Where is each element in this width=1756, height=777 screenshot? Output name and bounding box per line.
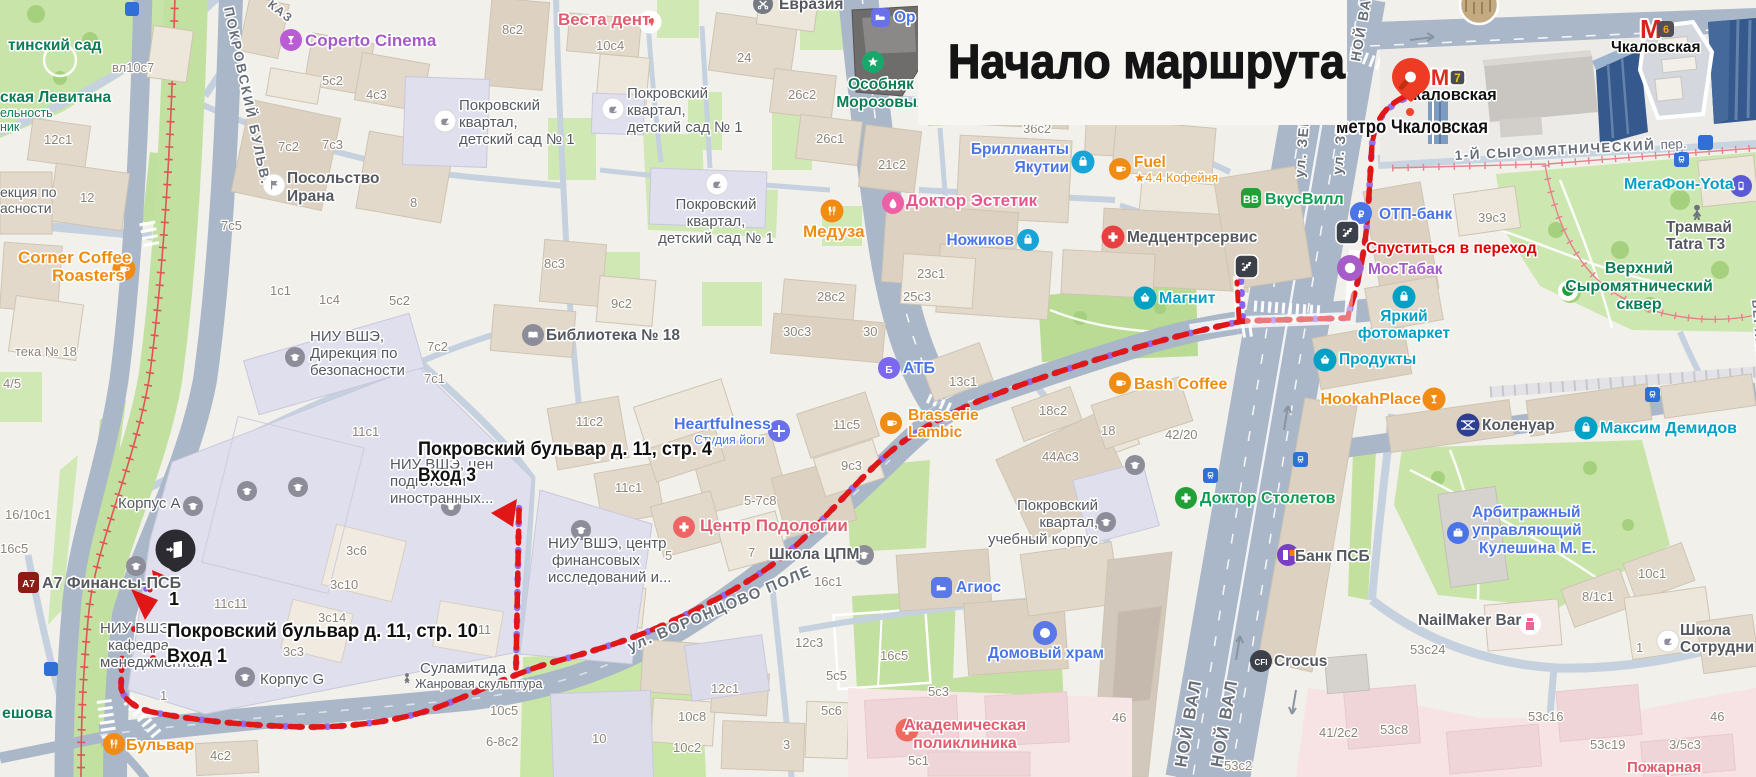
svg-text:Домовый храм: Домовый храм bbox=[988, 645, 1104, 662]
svg-text:А7: А7 bbox=[22, 579, 35, 590]
svg-text:12с1: 12с1 bbox=[711, 681, 739, 696]
svg-text:12с1: 12с1 bbox=[44, 132, 72, 147]
svg-text:8/1с1: 8/1с1 bbox=[1582, 589, 1614, 604]
svg-text:тека № 18: тека № 18 bbox=[15, 344, 77, 359]
svg-text:ВкусВилл: ВкусВилл bbox=[1265, 191, 1344, 208]
svg-text:Ножиков: Ножиков bbox=[946, 232, 1014, 249]
svg-text:5с5: 5с5 bbox=[826, 668, 847, 683]
svg-text:1с1: 1с1 bbox=[270, 283, 291, 298]
svg-text:30: 30 bbox=[863, 324, 877, 339]
svg-text:Доктор Эстетик: Доктор Эстетик bbox=[906, 191, 1038, 210]
svg-text:Суламитида: Суламитида bbox=[420, 660, 507, 677]
svg-text:7: 7 bbox=[748, 545, 755, 560]
svg-text:39с3: 39с3 bbox=[1478, 210, 1506, 225]
svg-text:ОсобнякМорозовых: ОсобнякМорозовых bbox=[836, 76, 926, 111]
svg-text:6: 6 bbox=[1663, 24, 1669, 36]
svg-text:1: 1 bbox=[160, 688, 167, 703]
svg-text:10с5: 10с5 bbox=[490, 703, 518, 718]
svg-text:вл10с7: вл10с7 bbox=[112, 60, 154, 75]
svg-text:11с1: 11с1 bbox=[615, 480, 642, 495]
svg-text:Heartfulness: Heartfulness bbox=[674, 416, 771, 433]
svg-text:АТБ: АТБ bbox=[903, 360, 935, 377]
svg-text:16/10с1: 16/10с1 bbox=[5, 507, 51, 522]
svg-text:Коленуар: Коленуар bbox=[1482, 417, 1555, 434]
svg-text:42/20: 42/20 bbox=[1165, 427, 1198, 442]
svg-text:ОТП-банк: ОТП-банк bbox=[1379, 206, 1452, 223]
svg-text:Покровский бульвар д. 11, стр.: Покровский бульвар д. 11, стр. 4 bbox=[418, 439, 712, 460]
svg-text:Веста дент: Веста дент bbox=[558, 10, 650, 29]
svg-text:Школа ЦПМ: Школа ЦПМ bbox=[769, 546, 859, 563]
svg-text:26с2: 26с2 bbox=[788, 87, 816, 102]
svg-text:11с1: 11с1 bbox=[352, 424, 379, 439]
svg-text:ельность: ельность bbox=[0, 106, 53, 120]
svg-text:CFI: CFI bbox=[1255, 658, 1268, 667]
svg-text:Продукты: Продукты bbox=[1339, 351, 1416, 368]
svg-text:16с5: 16с5 bbox=[0, 541, 28, 556]
svg-text:7с2: 7с2 bbox=[278, 139, 299, 154]
svg-text:12с3: 12с3 bbox=[795, 635, 823, 650]
svg-text:53с16: 53с16 bbox=[1528, 709, 1563, 724]
svg-text:13с1: 13с1 bbox=[949, 374, 977, 389]
svg-text:ВВ: ВВ bbox=[1243, 194, 1259, 206]
svg-text:3/5с3: 3/5с3 bbox=[1669, 737, 1701, 752]
svg-text:Корпус G: Корпус G bbox=[260, 671, 324, 688]
svg-text:Покровский бульвар д. 11, стр.: Покровский бульвар д. 11, стр. 10 bbox=[167, 621, 478, 642]
svg-text:1: 1 bbox=[169, 589, 179, 609]
svg-text:25с3: 25с3 bbox=[903, 289, 931, 304]
svg-text:11с11: 11с11 bbox=[214, 596, 248, 611]
svg-text:5с6: 5с6 bbox=[821, 703, 842, 718]
svg-text:Вход 3: Вход 3 bbox=[418, 465, 476, 486]
svg-text:3с10: 3с10 bbox=[330, 577, 358, 592]
svg-text:46: 46 bbox=[1710, 709, 1724, 724]
svg-text:Б: Б bbox=[885, 364, 893, 376]
svg-text:4с3: 4с3 bbox=[366, 87, 387, 102]
svg-text:21с2: 21с2 bbox=[878, 157, 906, 172]
svg-text:Медуза: Медуза bbox=[803, 222, 865, 241]
svg-text:Академическаяполиклиника: Академическаяполиклиника bbox=[904, 717, 1026, 752]
svg-text:Медцентрсервис: Медцентрсервис bbox=[1127, 229, 1258, 246]
svg-text:10: 10 bbox=[592, 731, 606, 746]
svg-text:Центр Подологии: Центр Подологии bbox=[700, 516, 848, 535]
svg-text:5с2: 5с2 bbox=[322, 73, 343, 88]
svg-text:10с2: 10с2 bbox=[673, 740, 701, 755]
svg-text:6-8с2: 6-8с2 bbox=[486, 734, 519, 749]
svg-text:9с2: 9с2 bbox=[611, 296, 632, 311]
svg-text:10с4: 10с4 bbox=[596, 38, 624, 53]
svg-text:1: 1 bbox=[1636, 640, 1643, 655]
svg-text:3с6: 3с6 bbox=[346, 543, 367, 558]
svg-text:Магнит: Магнит bbox=[1159, 290, 1216, 307]
svg-text:11с5: 11с5 bbox=[833, 417, 860, 432]
svg-text:44Ас3: 44Ас3 bbox=[1042, 449, 1079, 464]
svg-text:7с1: 7с1 bbox=[424, 371, 445, 386]
svg-text:10с8: 10с8 bbox=[678, 709, 706, 724]
svg-text:Crocus: Crocus bbox=[1274, 653, 1327, 670]
svg-text:ТрамвайTatra T3: ТрамвайTatra T3 bbox=[1666, 219, 1732, 253]
svg-text:7с5: 7с5 bbox=[221, 218, 242, 233]
svg-text:Fuel: Fuel bbox=[1134, 154, 1166, 171]
svg-text:ник: ник bbox=[0, 120, 20, 134]
svg-text:5-7с8: 5-7с8 bbox=[744, 493, 777, 508]
svg-text:28с2: 28с2 bbox=[817, 289, 845, 304]
svg-text:Ор: Ор bbox=[894, 9, 916, 26]
svg-text:₽: ₽ bbox=[1358, 210, 1365, 221]
svg-text:Спуститься в переход: Спуститься в переход bbox=[1366, 240, 1537, 257]
svg-text:12: 12 bbox=[80, 190, 94, 205]
svg-text:Доктор Столетов: Доктор Столетов bbox=[1200, 490, 1336, 507]
svg-text:7: 7 bbox=[1454, 73, 1460, 85]
svg-text:5с2: 5с2 bbox=[389, 293, 410, 308]
svg-text:23с1: 23с1 bbox=[917, 266, 945, 281]
svg-text:1с4: 1с4 bbox=[319, 292, 340, 307]
svg-text:5с1: 5с1 bbox=[908, 753, 929, 768]
svg-text:Пожарная: Пожарная bbox=[1627, 759, 1701, 776]
svg-text:26с1: 26с1 bbox=[816, 131, 844, 146]
svg-text:тинский сад: тинский сад bbox=[8, 37, 102, 54]
svg-text:Начало маршрута: Начало маршрута bbox=[948, 36, 1345, 89]
svg-text:Агиос: Агиос bbox=[956, 579, 1001, 596]
svg-text:24: 24 bbox=[737, 50, 751, 65]
svg-text:8с2: 8с2 bbox=[502, 22, 523, 37]
svg-text:А7 Финансы-ПСБ: А7 Финансы-ПСБ bbox=[42, 575, 181, 592]
svg-text:Бульвар: Бульвар bbox=[126, 737, 195, 754]
svg-text:53с8: 53с8 bbox=[1380, 722, 1408, 737]
svg-text:5с3: 5с3 bbox=[928, 684, 949, 699]
svg-text:30с3: 30с3 bbox=[783, 324, 811, 339]
svg-text:★4.4 Кофейня: ★4.4 Кофейня bbox=[1134, 171, 1218, 185]
svg-text:8с3: 8с3 bbox=[544, 256, 565, 271]
svg-text:10с1: 10с1 bbox=[1638, 566, 1666, 581]
svg-text:18с2: 18с2 bbox=[1039, 403, 1067, 418]
svg-text:4/5: 4/5 bbox=[3, 376, 21, 391]
svg-text:41/2с2: 41/2с2 bbox=[1319, 725, 1358, 740]
svg-text:NailMaker Bar: NailMaker Bar bbox=[1418, 612, 1521, 629]
svg-text:Библиотека № 18: Библиотека № 18 bbox=[546, 327, 680, 344]
svg-text:3с3: 3с3 bbox=[283, 644, 304, 659]
svg-text:16с1: 16с1 bbox=[814, 574, 842, 589]
svg-text:Coperto Cinema: Coperto Cinema bbox=[305, 31, 437, 50]
svg-text:7с3: 7с3 bbox=[322, 137, 343, 152]
svg-text:ская Левитана: ская Левитана bbox=[0, 89, 111, 106]
svg-text:Жанровая скульптура: Жанровая скульптура bbox=[415, 677, 542, 691]
svg-text:МосТабак: МосТабак bbox=[1368, 261, 1443, 278]
svg-text:11с2: 11с2 bbox=[576, 414, 603, 429]
svg-text:Корпус А: Корпус А bbox=[118, 495, 181, 512]
svg-text:метро Чкаловская: метро Чкаловская bbox=[1336, 117, 1488, 138]
svg-text:Евразия: Евразия bbox=[779, 0, 843, 13]
svg-text:53с2: 53с2 bbox=[1224, 758, 1252, 773]
svg-text:18: 18 bbox=[1101, 423, 1115, 438]
svg-text:екция поасности: екция поасности bbox=[0, 184, 57, 216]
svg-text:9с3: 9с3 bbox=[841, 458, 862, 473]
svg-text:Банк ПСБ: Банк ПСБ bbox=[1295, 548, 1370, 565]
svg-text:8: 8 bbox=[410, 195, 417, 210]
svg-text:46: 46 bbox=[1112, 710, 1126, 725]
svg-text:ешова: ешова bbox=[2, 705, 53, 722]
svg-text:Максим Демидов: Максим Демидов bbox=[1600, 420, 1737, 437]
svg-text:Вход 1: Вход 1 bbox=[167, 646, 227, 667]
svg-text:53с24: 53с24 bbox=[1410, 642, 1445, 657]
svg-text:7с2: 7с2 bbox=[427, 339, 448, 354]
svg-text:3: 3 bbox=[783, 737, 790, 752]
svg-text:HookahPlace: HookahPlace bbox=[1321, 391, 1422, 408]
svg-text:Bash Coffee: Bash Coffee bbox=[1134, 376, 1227, 393]
svg-text:16с5: 16с5 bbox=[880, 648, 908, 663]
svg-text:53с19: 53с19 bbox=[1590, 737, 1625, 752]
svg-text:МегаФон-Yota: МегаФон-Yota bbox=[1624, 176, 1734, 193]
svg-text:4с2: 4с2 bbox=[210, 748, 231, 763]
svg-text:АрбитражныйуправляющийКулешина: АрбитражныйуправляющийКулешина М. Е. bbox=[1472, 504, 1596, 557]
